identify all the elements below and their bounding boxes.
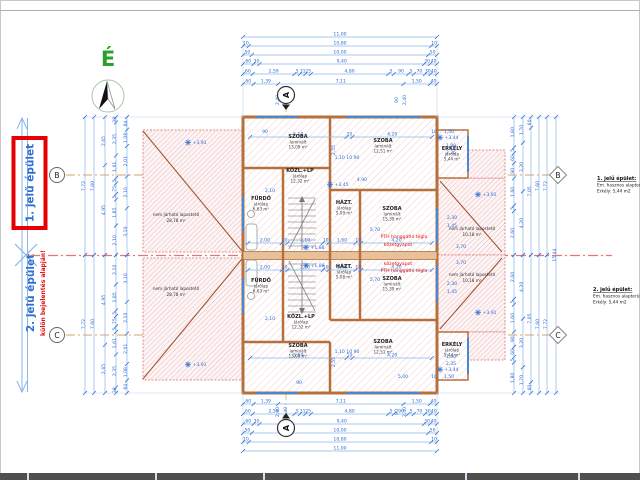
annotation-text: 1,10 10 90 [335,349,360,355]
dim-value: 90 [510,336,516,342]
dim-value: 75 [112,186,118,192]
room-label: 13,09 m² [288,354,307,359]
dim-value: 11,00 [333,446,346,452]
annotation-text: 4,90 [357,177,367,183]
dim-value: 5 [112,195,118,198]
roof-label: 10,18 m² [462,232,481,237]
annotation-text: 5,70 [370,227,380,233]
dim-value: 1,60 [510,313,516,323]
room-label: 12,32 m² [290,179,309,184]
dim-value: 50 [430,50,436,56]
dim-value: 5 [410,69,413,75]
level-value: +3,45 [335,182,349,188]
dim-value: 7,72 [81,319,87,329]
dim-value: 90 [510,168,516,174]
annotation-text: 2,35 [446,150,456,156]
section-arrow-icon [282,105,290,111]
level-value: +3,91 [193,362,207,368]
dim-value: 70 [416,69,422,75]
dim-value: 1,60 [510,187,516,197]
level-value: +3,91 [483,310,497,316]
dim-value: 1,61 [112,162,118,172]
room-label: 12,32 m² [291,325,310,330]
room-label: 15,39 m² [382,217,401,222]
annotation-text: 1,80 [446,143,456,149]
building2-note: külön bejelentés alapján! [40,250,47,336]
room-label: 12,51 m² [373,350,392,355]
annotation-text: 5,00 [398,374,408,380]
roof-label: nem járható lapostető [153,212,200,217]
annotation-text: kőzetgyapot [384,261,413,267]
dim-value: 1,70 [519,125,525,135]
dim-value: 10 [323,238,329,244]
building2-label: 2. jelű épület [25,254,37,332]
room-label: 6,63 m² [253,289,270,294]
annotation-text: 1,10 10 90 [335,155,360,161]
dim-value: 4,80 [344,409,354,415]
roof-label: 10,18 m² [462,278,481,283]
dim-value: 2,10 [112,265,118,275]
annotation-text: 2,10 [265,188,275,194]
dim-value: 10,00 [333,428,346,434]
section-letter: A [282,91,291,98]
dim-value: 7,11 [336,79,346,85]
dim-value: 2,01 [123,156,129,166]
dim-value: 60 [245,409,251,415]
annotation-text: 2,55 [331,145,337,155]
dim-value: 70 [416,409,422,415]
dim-value: 5 [510,300,516,303]
dim-value: 50 [244,428,250,434]
room-label: 12,51 m² [373,149,392,154]
dim-value: 5 [510,358,516,361]
legend2-line1: Em. hasznos alapterület: [593,294,640,300]
dim-value: 7,11 [336,399,346,405]
dim-value: 90 [398,69,404,75]
dim-value: 84 [123,384,129,390]
dim-value: 3,10 [123,273,129,283]
dim-value: 75 [112,318,118,324]
annotation-text: 90 [394,409,400,415]
dim-value: 2,65 [101,364,107,374]
annotation-text: 90 [394,97,400,103]
dim-value: 60 [245,69,251,75]
dim-value: 2,01 [123,344,129,354]
dim-value: 7,72 [543,181,549,191]
dim-value: 2,10 [112,235,118,245]
level-value: +3,91 [483,192,497,198]
annotation-text: 10 [431,374,437,380]
dim-value: 4,95 [101,205,107,215]
roof-label: nem járható lapostető [153,286,200,291]
annotation-text: PTH hanggátló tégla [381,267,428,274]
dim-value: 30 [254,59,260,65]
dim-value: 7,60 [90,319,96,329]
dim-value: 60 [510,155,516,161]
dim-value: 10 [243,437,249,443]
legend1-line1: Em. hasznos alapterület: [597,183,640,189]
annotation-text: 1,45 [447,223,457,229]
dim-value: 10 [282,238,288,244]
dim-value: 10 [355,238,361,244]
dim-value: 10 [431,41,437,47]
dim-value: 9,40 [337,419,347,425]
dim-value: 10,80 [333,437,346,443]
room-label: 6,63 m² [253,207,270,212]
dim-value: 30 [424,419,430,425]
dim-value: 5 [510,207,516,210]
dim-value: 5 [112,312,118,315]
dim-value: 2,35 [112,366,118,376]
annotation-text: 2,40 [402,95,408,105]
dim-value: 4,20 [519,282,525,292]
dim-value: 1,80 [510,127,516,137]
section-letter: A [282,424,291,431]
compass-needle-light [107,81,115,109]
dim-value: 4,20 [387,132,397,138]
dim-value: 10,00 [333,50,346,56]
dim-value: 60 [527,119,533,125]
annotation-text: 1,80 [446,354,456,360]
dim-value: 10 [347,132,353,138]
dim-value: 1,85 [112,207,118,217]
annotation-text: 1,50 [444,374,454,380]
grid-letter: B [54,171,59,180]
dim-value: 1,85 [112,292,118,302]
bottom-titleblock-edge [0,473,640,480]
dim-value: 60 [527,385,533,391]
dim-value: 40 [431,399,437,405]
dim-value: 9,40 [337,59,347,65]
annotation-text: 3,70 [456,260,466,266]
level-value: +1,88 [311,263,325,269]
building1-label: 1. jelű épület [25,144,37,222]
dim-value: 5 [112,328,118,331]
legend1-line2: Erkély: 5,44 m2 [597,188,631,195]
dim-value: 5 [390,409,393,415]
grid-letter: B [555,171,560,180]
dim-value: 10 [243,41,249,47]
dim-value: 2,60 [510,228,516,238]
dim-value: 7,60 [90,181,96,191]
dim-value: 50 [430,428,436,434]
grid-letter: C [54,331,59,340]
dim-value: 7,05 [527,313,533,323]
annotation-text: 2,35 [446,361,456,367]
dim-value: 10 [355,265,361,271]
dim-value: 60 [245,79,251,85]
dim-value: 5 [112,179,118,182]
room-label: 13,09 m² [288,145,307,150]
annotation-text: 2,10 [265,316,275,322]
dim-value: 3,20 [519,162,525,172]
dim-value: 84 [123,120,129,126]
drawing-page: É 1. jelű épület 2. jelű épület külön be… [0,0,640,480]
dim-value: 2,10 [123,187,129,197]
dim-value: 25 [305,409,311,415]
room-label: 5,08 m² [336,275,353,280]
room-label: 5,09 m² [336,211,353,216]
dim-value: 10 [282,265,288,271]
annotation-text: 1,45 [447,289,457,295]
dim-value: 2,65 [101,136,107,146]
annotation-text: 2,30 [447,215,457,221]
roof-label: 28,78 m² [166,218,185,223]
floorplan-drawing: É 1. jelű épület 2. jelű épület külön be… [0,0,640,480]
dim-value: 1,80 [510,373,516,383]
dim-value: 40 [431,409,437,415]
dim-value: 60 [245,59,251,65]
dim-value: 1,70 [519,375,525,385]
dim-value: 10,80 [333,41,346,47]
dim-value: 7,05 [527,186,533,196]
level-value: +3,44 [445,367,459,373]
dim-value: 30 [424,59,430,65]
dim-value: 5 [296,69,299,75]
dim-value: 50 [244,50,250,56]
dim-value: 40 [431,79,437,85]
dim-value: 1,50 [412,399,422,405]
annotation-text: 90 [296,380,302,386]
roof-label: nem járható lapostető [449,272,496,277]
annotation-text: 2,40 [275,407,281,417]
north-label: É [101,46,115,71]
dim-value: 3,10 [123,226,129,236]
dim-value: 2,00 [260,238,270,244]
building-plan [82,40,560,448]
dim-value: 1,60 [337,238,347,244]
dim-value: 4,20 [519,218,525,228]
room-label: 5,44 m² [444,157,461,162]
dim-value: 7,60 [535,181,541,191]
dim-value: 30 [254,419,260,425]
party-wall [243,252,437,260]
dim-value: 4,95 [101,295,107,305]
annotation-text: 2,55 [331,357,337,367]
dim-value: 1,39 [261,79,271,85]
roof-label: 28,78 m² [166,292,185,297]
dim-value: 5 [510,149,516,152]
north-symbol: É [92,46,124,112]
annotation-text: 1,50 [444,129,454,135]
dim-value: 15,44 [552,248,558,261]
dim-value: 5 [296,409,299,415]
dim-value: 40 [431,419,437,425]
dim-value: 60 [510,349,516,355]
dim-value: 2,10 [300,238,310,244]
dim-value: 2,00 [260,265,270,271]
dim-value: 4,80 [344,69,354,75]
dim-value: 5 [410,409,413,415]
annotation-text: kőzetgyapot [384,242,413,248]
level-value: +3,44 [445,135,459,141]
compass-needle-dark [99,81,108,109]
dim-value: 1,50 [412,79,422,85]
level-value: +3,91 [193,140,207,146]
dim-value: 7,60 [535,319,541,329]
dim-value: 1,08 [123,133,129,143]
annotation-text: 90 [262,129,268,135]
dim-value: 25 [305,69,311,75]
dim-value: 11,00 [333,32,346,38]
dim-value: 3,20 [519,338,525,348]
dim-value: 10 [431,437,437,443]
dim-value: 40 [431,69,437,75]
dim-value: 1,39 [261,399,271,405]
legend2-title: 2. jelű épület: [593,286,632,293]
annotation-text: 2,40 [402,407,408,417]
dim-value: 2,10 [123,313,129,323]
dim-value: 60 [245,419,251,425]
legend1-title: 1. jelű épület: [597,175,636,182]
dim-value: 2,35 [112,134,118,144]
annotation-text: 2,30 [447,281,457,287]
dim-value: 60 [245,399,251,405]
level-value: +1,88 [311,245,325,251]
annotation-text: PTH hanggátló tégla [381,233,428,240]
grid-letter: C [555,331,560,340]
flat-roof-strip [468,332,505,360]
flat-roof-strip [468,150,505,178]
dim-value: 1,08 [123,367,129,377]
dim-value: 2,59 [268,69,278,75]
dim-value: 7,72 [81,181,87,191]
dim-value: 2,60 [510,272,516,282]
room-label: 15,39 m² [382,287,401,292]
annotation-text: 10 [431,129,437,135]
annotation-text: 5,70 [370,277,380,283]
dim-value: 1,61 [112,338,118,348]
legend2-line2: Erkély: 5,44 m2 [593,299,627,306]
annotation-text: 3,70 [456,244,466,250]
legend-blocks: 1. jelű épület: Em. hasznos alapterület:… [593,175,640,306]
dim-value: 7,72 [543,319,549,329]
dim-value: 5 [390,69,393,75]
dim-value: 40 [431,59,437,65]
